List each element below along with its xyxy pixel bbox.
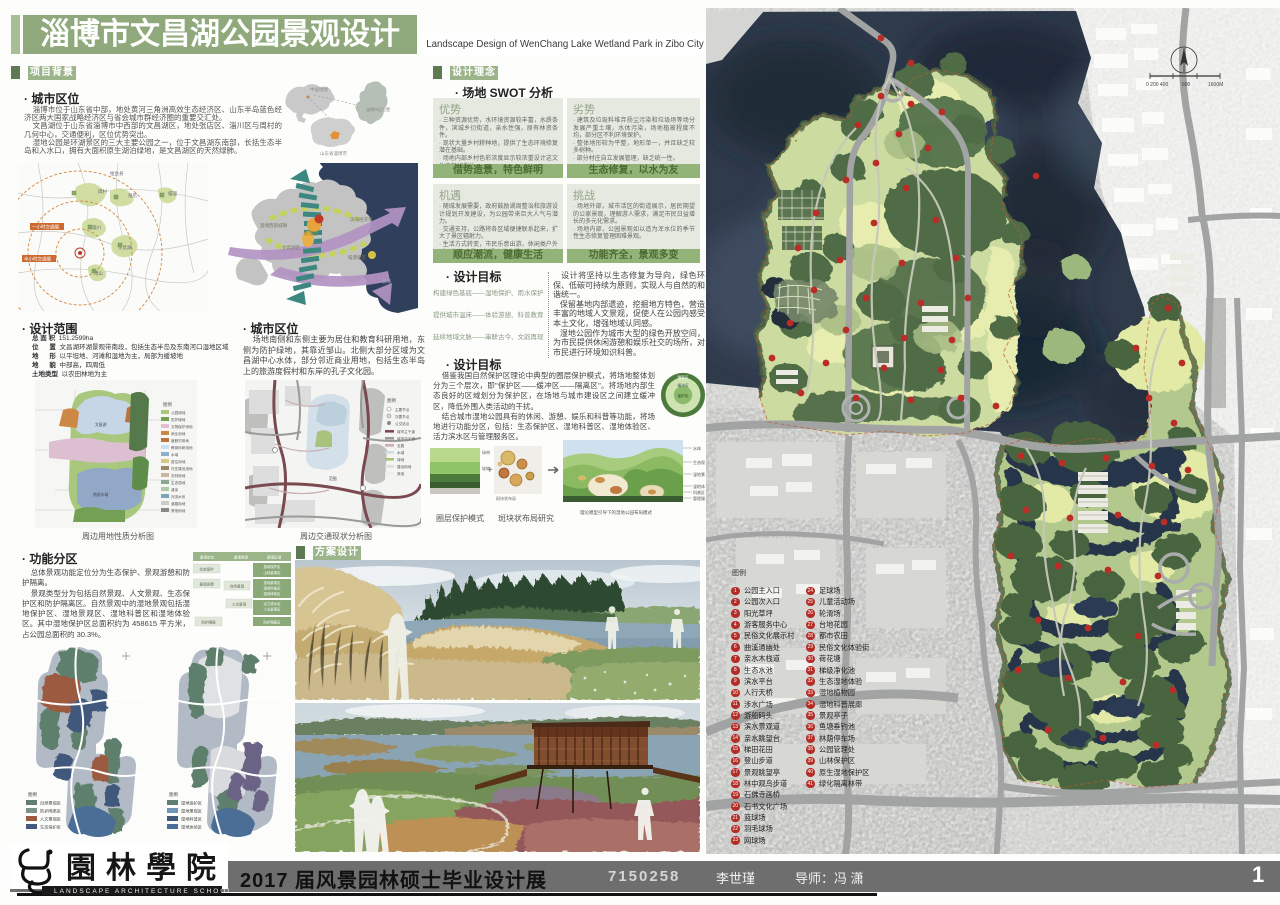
- svg-text:湿地科普区: 湿地科普区: [264, 586, 282, 591]
- svg-text:1600M: 1600M: [1208, 82, 1223, 88]
- svg-text:湿地体验区: 湿地体验区: [264, 591, 282, 596]
- svg-text:淄川: 淄川: [92, 224, 101, 231]
- svg-text:防护隔离: 防护隔离: [201, 620, 216, 625]
- svg-text:绿带: 绿带: [482, 449, 490, 455]
- svg-text:生态保护区: 生态保护区: [40, 824, 61, 831]
- svg-text:新城區: 新城區: [304, 230, 318, 237]
- svg-text:公园绿地: 公园绿地: [171, 410, 186, 415]
- svg-text:商业用地: 商业用地: [171, 431, 186, 436]
- svg-text:湿地保护区: 湿地保护区: [264, 564, 282, 569]
- svg-text:滩涂: 滩涂: [171, 487, 179, 492]
- svg-text:缓冲区: 缓冲区: [677, 383, 688, 388]
- svg-text:800: 800: [1182, 82, 1191, 88]
- svg-text:生态湿地: 生态湿地: [171, 480, 186, 485]
- svg-text:教育科研用地: 教育科研用地: [171, 445, 193, 450]
- svg-text:科普区: 科普区: [693, 489, 705, 495]
- svg-text:公交站点: 公交站点: [395, 421, 410, 426]
- svg-text:湿地体验区: 湿地体验区: [181, 824, 202, 831]
- svg-text:斑块状布局: 斑块状布局: [496, 495, 516, 501]
- svg-text:周村: 周村: [98, 188, 107, 195]
- svg-text:滨海经济带: 滨海经济带: [350, 216, 373, 223]
- svg-text:人文景观区: 人文景观区: [264, 607, 282, 612]
- svg-text:淄博市区位置: 淄博市区位置: [366, 106, 390, 112]
- svg-text:生态保护区: 生态保护区: [693, 459, 705, 465]
- svg-text:范围: 范围: [329, 476, 337, 481]
- svg-text:湿地体验区: 湿地体验区: [693, 483, 705, 489]
- svg-text:人文景观: 人文景观: [232, 602, 247, 607]
- svg-text:次要节点: 次要节点: [395, 414, 410, 419]
- svg-text:河流水系: 河流水系: [171, 494, 186, 499]
- svg-text:中国地图: 中国地图: [310, 86, 328, 93]
- svg-text:園林學院: 園林學院: [66, 851, 216, 885]
- svg-text:城市次干道: 城市次干道: [397, 436, 415, 441]
- svg-text:文昌湖: 文昌湖: [95, 422, 107, 427]
- svg-text:保护区: 保护区: [677, 393, 688, 398]
- svg-text:湿地保护区: 湿地保护区: [181, 800, 202, 807]
- svg-text:张店: 张店: [128, 192, 137, 199]
- svg-text:隔离区: 隔离区: [677, 374, 688, 379]
- svg-text:湿地科普区: 湿地科普区: [181, 816, 202, 823]
- svg-text:管理服务区: 管理服务区: [693, 495, 705, 501]
- svg-text:水域: 水域: [397, 450, 405, 455]
- svg-text:建设用地: 建设用地: [397, 464, 412, 469]
- svg-text:防护绿地: 防护绿地: [171, 417, 186, 422]
- svg-text:景观定位: 景观定位: [200, 555, 215, 560]
- svg-text:其他用地: 其他用地: [171, 508, 186, 513]
- svg-text:LANDSCAPE ARCHITECTURE SCHOOL: LANDSCAPE ARCHITECTURE SCHOOL: [54, 888, 229, 895]
- svg-text:居住用地: 居住用地: [171, 459, 186, 464]
- svg-text:景观游憩: 景观游憩: [199, 582, 214, 587]
- svg-text:自然景观: 自然景观: [230, 584, 245, 589]
- svg-text:临港新区: 临港新区: [348, 254, 366, 261]
- svg-text:水体: 水体: [693, 445, 701, 451]
- svg-text:+: +: [487, 465, 493, 476]
- svg-text:农林用地: 农林用地: [171, 473, 186, 478]
- svg-text:渤海: 渤海: [382, 278, 391, 285]
- svg-text:山林景观区: 山林景观区: [264, 570, 282, 575]
- svg-text:防护隔离区: 防护隔离区: [264, 620, 282, 625]
- svg-text:一小时交通圈: 一小时交通圈: [32, 224, 59, 231]
- svg-text:半小时交通圈: 半小时交通圈: [24, 256, 51, 263]
- svg-text:人文景观区: 人文景观区: [40, 816, 61, 823]
- svg-text:图例: 图例: [387, 397, 396, 404]
- svg-text:城市主干道: 城市主干道: [397, 429, 415, 434]
- svg-text:图例: 图例: [28, 791, 37, 798]
- svg-text:活力滨水区: 活力滨水区: [264, 601, 282, 606]
- svg-text:道路用地: 道路用地: [171, 501, 186, 506]
- svg-text:南部水域: 南部水域: [93, 492, 108, 497]
- svg-text:水域: 水域: [171, 452, 179, 457]
- svg-text:生态保护: 生态保护: [199, 567, 214, 572]
- svg-text:度假村用地: 度假村用地: [171, 438, 189, 443]
- svg-text:其他: 其他: [397, 471, 405, 476]
- svg-text:文物保护用地: 文物保护用地: [171, 424, 193, 429]
- svg-text:支路: 支路: [397, 443, 405, 448]
- svg-text:桓台县: 桓台县: [110, 170, 124, 177]
- svg-text:景观区域: 景观区域: [267, 555, 282, 560]
- svg-text:湿地景观区: 湿地景观区: [693, 471, 705, 477]
- svg-text:湿地景观区: 湿地景观区: [181, 808, 202, 815]
- svg-text:理论模型引导下的湿地公园布局模式: 理论模型引导下的湿地公园布局模式: [580, 509, 652, 516]
- svg-text:绿地: 绿地: [397, 457, 405, 462]
- svg-text:文昌湖区: 文昌湖区: [282, 244, 300, 251]
- svg-text:防护隔离区: 防护隔离区: [40, 808, 61, 815]
- svg-text:淄博西部城镇: 淄博西部城镇: [260, 222, 287, 229]
- svg-text:山东省淄博市: 山东省淄博市: [320, 150, 347, 157]
- svg-text:自然景观区: 自然景观区: [40, 800, 61, 807]
- svg-text:图例: 图例: [169, 791, 178, 798]
- svg-text:主要节点: 主要节点: [395, 407, 410, 412]
- svg-text:景观类型: 景观类型: [234, 555, 249, 560]
- svg-text:图例: 图例: [163, 401, 172, 408]
- svg-text:临淄: 临淄: [168, 190, 177, 197]
- svg-text:湿地景观区: 湿地景观区: [264, 580, 282, 585]
- svg-text:村庄建设用地: 村庄建设用地: [171, 466, 193, 471]
- svg-text:0 200 400: 0 200 400: [1146, 82, 1168, 88]
